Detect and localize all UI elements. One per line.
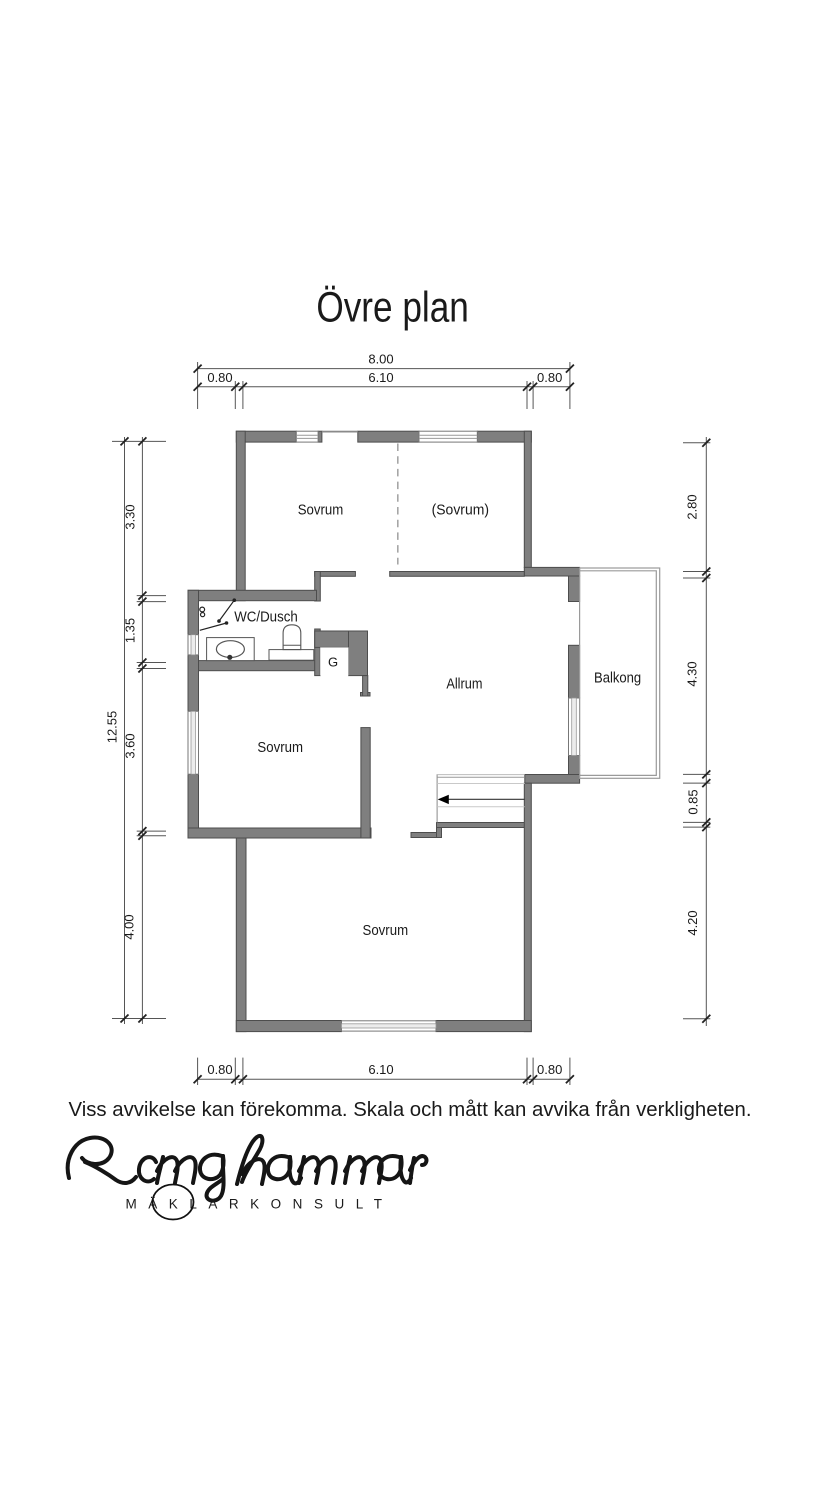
svg-text:0.80: 0.80 (537, 370, 562, 385)
svg-text:3.30: 3.30 (123, 504, 138, 529)
svg-text:(Sovrum): (Sovrum) (432, 503, 489, 519)
svg-text:Övre plan: Övre plan (316, 284, 469, 331)
svg-text:3.60: 3.60 (123, 733, 138, 758)
svg-text:0.80: 0.80 (537, 1062, 562, 1077)
svg-text:MÄKLARKONSULT: MÄKLARKONSULT (126, 1197, 383, 1212)
svg-text:0.85: 0.85 (686, 789, 701, 814)
svg-text:G: G (328, 655, 338, 670)
svg-text:Balkong: Balkong (594, 671, 641, 687)
svg-text:Sovrum: Sovrum (257, 740, 303, 756)
svg-text:2.80: 2.80 (685, 494, 700, 519)
svg-text:6.10: 6.10 (368, 1062, 393, 1077)
svg-text:WC/Dusch: WC/Dusch (234, 610, 298, 626)
svg-text:0.80: 0.80 (207, 370, 232, 385)
svg-text:Sovrum: Sovrum (363, 923, 409, 939)
svg-text:8.00: 8.00 (368, 352, 393, 367)
svg-text:4.00: 4.00 (122, 914, 137, 939)
svg-text:Allrum: Allrum (446, 677, 482, 693)
svg-text:1.35: 1.35 (123, 618, 138, 643)
svg-text:0.80: 0.80 (207, 1062, 232, 1077)
svg-text:6.10: 6.10 (368, 370, 393, 385)
svg-text:12.55: 12.55 (104, 711, 119, 744)
svg-text:Sovrum: Sovrum (298, 503, 344, 519)
svg-text:Viss avvikelse kan förekomma.: Viss avvikelse kan förekomma. Skala och … (69, 1099, 752, 1121)
svg-text:4.30: 4.30 (685, 661, 700, 686)
svg-text:4.20: 4.20 (685, 910, 700, 935)
